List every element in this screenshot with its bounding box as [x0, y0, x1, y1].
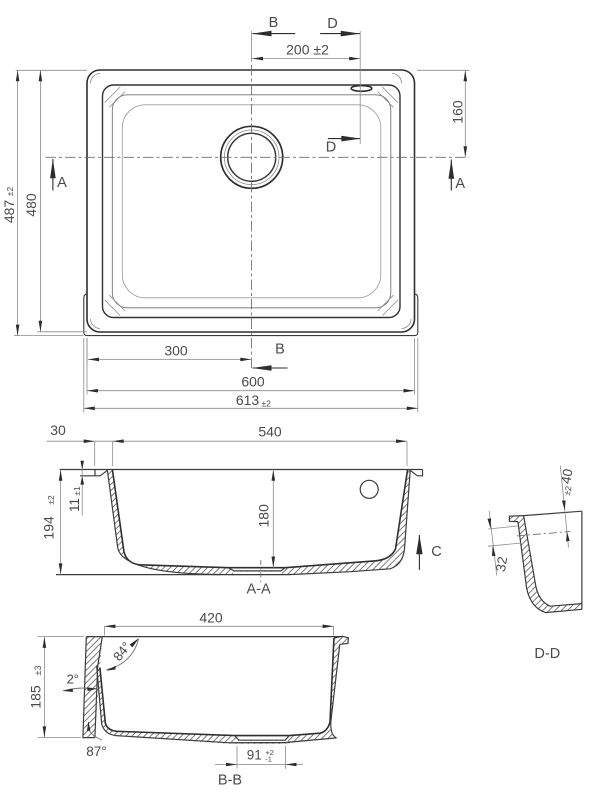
svg-text:±2: ±2 [562, 485, 574, 496]
svg-text:160: 160 [450, 100, 466, 124]
svg-text:±2: ±2 [46, 495, 56, 505]
svg-text:91: 91 [247, 748, 262, 763]
svg-text:±2: ±2 [5, 187, 15, 197]
svg-text:30: 30 [50, 422, 66, 438]
svg-text:194: 194 [40, 516, 56, 540]
svg-text:487: 487 [1, 200, 17, 224]
svg-text:A: A [455, 176, 465, 192]
svg-text:87°: 87° [86, 744, 106, 759]
svg-text:32: 32 [493, 555, 510, 572]
svg-text:±1: ±1 [72, 486, 82, 496]
svg-text:11: 11 [67, 498, 82, 512]
svg-text:200 ±2: 200 ±2 [286, 41, 329, 57]
svg-text:B: B [275, 342, 285, 358]
svg-text:180: 180 [255, 504, 271, 528]
svg-text:300: 300 [164, 342, 188, 358]
svg-text:2°: 2° [67, 672, 79, 687]
svg-text:-1: -1 [265, 754, 272, 763]
svg-text:A-A: A-A [247, 581, 272, 597]
svg-text:B: B [269, 15, 279, 31]
svg-text:D-D: D-D [534, 646, 560, 662]
svg-text:613: 613 [236, 392, 260, 408]
svg-text:600: 600 [241, 374, 265, 390]
svg-text:B-B: B-B [218, 773, 242, 789]
svg-text:D: D [326, 140, 336, 156]
svg-text:±2: ±2 [262, 398, 272, 408]
svg-text:C: C [431, 544, 441, 560]
svg-text:40: 40 [558, 468, 575, 485]
svg-text:D: D [327, 16, 337, 32]
svg-text:540: 540 [258, 424, 282, 440]
svg-text:420: 420 [199, 609, 223, 625]
svg-text:±3: ±3 [33, 666, 43, 676]
svg-text:480: 480 [23, 193, 39, 217]
svg-text:185: 185 [28, 685, 44, 709]
svg-text:A: A [57, 175, 67, 191]
